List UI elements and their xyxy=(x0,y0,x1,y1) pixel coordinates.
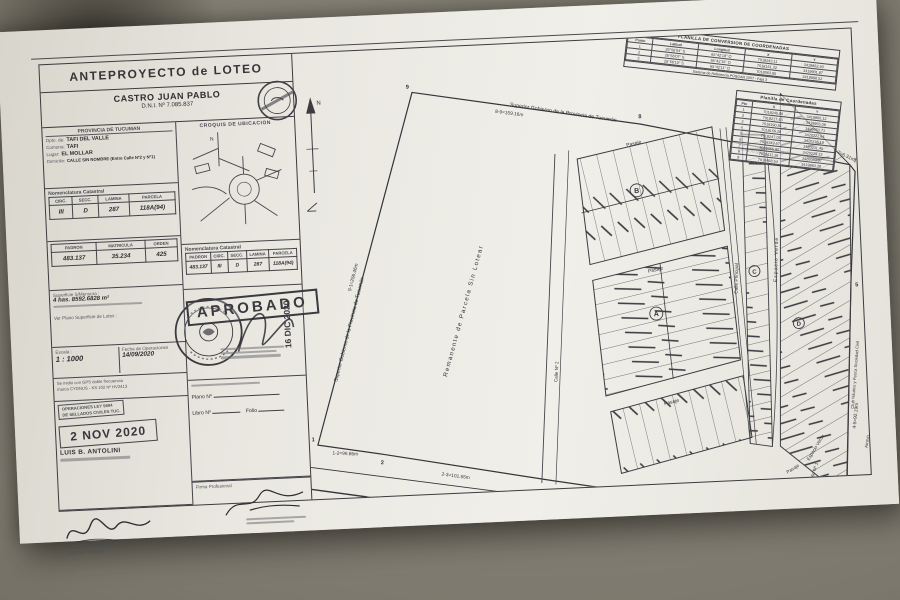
superficie-note: Ver Plano Superficie de Lotes : xyxy=(54,310,181,321)
firma-cell: Firma Profesional xyxy=(192,476,311,504)
cell-value: 483.137 xyxy=(186,260,211,274)
libro-line xyxy=(212,406,240,414)
boundary-top-label: Superior Gobierno de la Provincia de Tuc… xyxy=(509,102,617,124)
plano-box: Plano Nº Libro Nº Folio xyxy=(188,376,310,482)
boundary-labels: Superior Gobierno de la Provincia de Tuc… xyxy=(321,97,629,383)
vertex: 5 xyxy=(855,282,858,288)
vertex: 3 xyxy=(550,488,553,494)
coordinates-table: Planilla de Coordenadas Pto X Y 17018245… xyxy=(729,90,842,172)
loc-value: TAFI xyxy=(67,144,79,151)
croquis-sketch: N xyxy=(179,125,296,234)
plan-area: N xyxy=(292,28,871,499)
plano-label: Plano Nº xyxy=(191,394,212,401)
superficie-block: Superficie S/Mensura : 4 has. 8592.6828 … xyxy=(50,285,185,348)
vertex: 2 xyxy=(381,460,384,466)
date-stamp: 2 NOV 2020 xyxy=(58,419,157,449)
arroyo-label: Arroyo xyxy=(864,434,871,448)
stamps-block: OPERACIONES LEY 5694 DE SELLADOS CIVILES… xyxy=(55,396,193,511)
north-arrow-icon xyxy=(302,99,321,212)
folio-label: Folio xyxy=(246,408,258,415)
loc-label: Comuna: xyxy=(46,144,65,151)
cell-value: 425 xyxy=(145,247,178,262)
espacio-verde-label: Espacio Verde xyxy=(773,237,780,282)
calle-n2-line xyxy=(541,150,584,484)
nomenclatura2-block: Nomenclatura Catastral PADRON CIRC. SECC… xyxy=(182,240,302,290)
measurement: 1-2=99.86m xyxy=(332,450,358,457)
cell-value: D xyxy=(228,259,247,273)
drawing-frame: ANTEPROYECTO de LOTEO CASTRO JUAN PABLO … xyxy=(38,27,871,511)
loc-label: Dpto. de: xyxy=(46,137,65,144)
cell-value: 118A(94) xyxy=(269,256,297,270)
cell-value: 35.234 xyxy=(96,248,145,264)
aprobado-zone: APROBADO 16 DIC 2020 xyxy=(184,285,306,381)
vertex: 8 xyxy=(638,114,641,120)
escala-value: 1 : 1000 xyxy=(56,352,117,364)
panel-right-column: CROQUIS DE UBICACION xyxy=(176,117,311,505)
paper-sheet: ANTEPROYECTO de LOTEO CASTRO JUAN PABLO … xyxy=(0,0,899,544)
boundary-left-label: Superior Gobierno de la Provincia de Tuc… xyxy=(333,277,366,383)
measurement: 2-3=101.65m xyxy=(441,472,470,482)
plano-line xyxy=(213,388,279,398)
croquis-north: N xyxy=(210,136,214,142)
pasaje-label: Pasaje xyxy=(786,463,801,475)
loc-value: EL MOLLAR xyxy=(61,150,93,157)
north-label: N xyxy=(316,101,321,107)
loc-label: Domicilio: xyxy=(47,158,66,163)
sheet-title: ANTEPROYECTO de LOTEO xyxy=(69,62,263,85)
cell-value: 118A(94) xyxy=(129,200,175,216)
padron-table: PADRON MATRICULA ORDEN 483.137 35.234 42… xyxy=(51,238,179,267)
remanente-label: Remanente de Parcela Sin Lotear xyxy=(442,244,485,378)
title-block-panel: ANTEPROYECTO de LOTEO CASTRO JUAN PABLO … xyxy=(39,54,312,511)
padron-block: PADRON MATRICULA ORDEN 483.137 35.234 42… xyxy=(47,236,182,291)
measurement: 8-9=159.16m xyxy=(495,109,524,119)
loc-label: Lugar: xyxy=(46,152,59,159)
vertex: 6 xyxy=(859,174,862,180)
vertex: 9 xyxy=(406,85,409,91)
bottom-road xyxy=(311,443,861,500)
cell-value: 287 xyxy=(98,202,130,217)
cell: 9 xyxy=(730,153,746,161)
location-block: PROVINCIA DE TUCUMAN Dpto. de:TAFI DEL V… xyxy=(42,122,178,189)
libro-label: Libro Nº xyxy=(192,410,211,417)
vertex: 1 xyxy=(312,437,315,443)
owner-sig-dni: D.N.I. Nº 7.085.837 xyxy=(67,549,103,556)
calle-principal-label: Calle Principal xyxy=(733,263,740,294)
croquis-block: CROQUIS DE UBICACION xyxy=(176,117,299,245)
cell-value: III xyxy=(49,204,73,219)
cell-value: 483.137 xyxy=(51,250,97,266)
remanente-divider xyxy=(527,154,570,483)
block-letter-a: A xyxy=(654,311,659,318)
cell-value: D xyxy=(73,203,99,218)
cell-value: III xyxy=(211,259,229,273)
folio-line xyxy=(258,404,284,412)
nomenclatura-block: Nomenclatura Catastral CIRC. SECC. LAMIN… xyxy=(45,183,180,242)
cell-value: 287 xyxy=(246,258,269,272)
vertex: 7 xyxy=(853,158,856,164)
club-label: Club Náutico y Pesca Sociedad Civil xyxy=(850,341,860,409)
photo-background: ANTEPROYECTO de LOTEO CASTRO JUAN PABLO … xyxy=(0,0,900,600)
block-letter-b: B xyxy=(634,188,639,195)
calle-n2-label: Calle Nº 2 xyxy=(553,361,559,382)
